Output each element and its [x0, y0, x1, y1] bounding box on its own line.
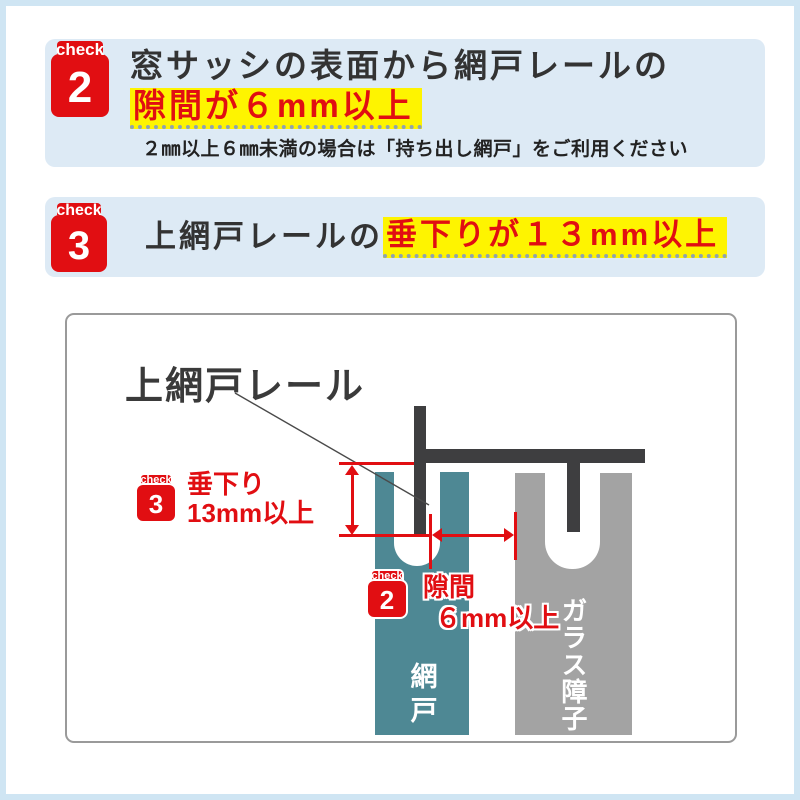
glass-shoji-label-wrap: ガラス障子 — [515, 597, 632, 732]
gap-arrow-line — [441, 534, 505, 537]
check2-heading-plain: 窓サッシの表面から網戸レールの — [130, 46, 688, 86]
check3-text-block: 上網戸レールの垂下りが１３mm以上 — [145, 217, 727, 258]
check3-heading-highlight: 垂下りが１３mm以上 — [383, 217, 727, 258]
check2-text-block: 窓サッシの表面から網戸レールの 隙間が６mm以上 ２㎜以上６㎜未満の場合は「持ち… — [130, 46, 688, 161]
badge-number: 2 — [380, 585, 394, 613]
screen-door-label: 網戸 — [403, 662, 442, 730]
check2-usage-note: ２㎜以上６㎜未満の場合は「持ち出し網戸」をご利用ください — [130, 134, 688, 161]
check2-section: 2 check 窓サッシの表面から網戸レールの 隙間が６mm以上 ２㎜以上６㎜未… — [45, 39, 765, 167]
screen-door-label-wrap: 網戸 — [375, 662, 469, 730]
badge-body: 2 — [368, 581, 406, 617]
check3-section: 3 check 上網戸レールの垂下りが１３mm以上 — [45, 197, 765, 277]
gap-dimension-right-tick — [514, 512, 517, 560]
check3-badge: 3 check — [51, 203, 107, 272]
sag-arrowhead-down — [345, 525, 359, 535]
sag-arrow-line — [351, 473, 354, 525]
gap-arrowhead-right — [504, 528, 514, 542]
badge-body: 3 — [137, 485, 175, 521]
diagram-panel: 上網戸レール 3 check — [65, 313, 737, 743]
sag-check-badge: 3 check — [137, 475, 175, 521]
glass-shoji-label: ガラス障子 — [555, 597, 592, 732]
badge-check-label: check — [368, 570, 406, 582]
badge-body: 3 — [51, 215, 107, 272]
badge-number: 2 — [68, 62, 92, 110]
badge-body: 2 — [51, 54, 109, 117]
gap-arrowhead-left — [432, 528, 442, 542]
check2-heading-highlight: 隙間が６mm以上 — [130, 88, 422, 129]
sag-annotation-line1: 垂下り — [187, 470, 314, 499]
sag-annotation-text: 垂下り 13mm以上 — [187, 470, 314, 528]
gap-check-badge: 2 check — [368, 571, 406, 617]
badge-number: 3 — [149, 489, 163, 517]
badge-number: 3 — [68, 222, 90, 266]
check2-badge: 2 check — [51, 41, 109, 117]
badge-check-label: check — [51, 202, 107, 220]
badge-check-label: check — [137, 474, 175, 486]
sag-annotation-line2: 13mm以上 — [187, 499, 314, 528]
page: 2 check 窓サッシの表面から網戸レールの 隙間が６mm以上 ２㎜以上６㎜未… — [0, 0, 800, 800]
badge-check-label: check — [51, 40, 109, 60]
sag-arrowhead-up — [345, 465, 359, 475]
check3-heading-plain: 上網戸レールの — [145, 219, 383, 254]
